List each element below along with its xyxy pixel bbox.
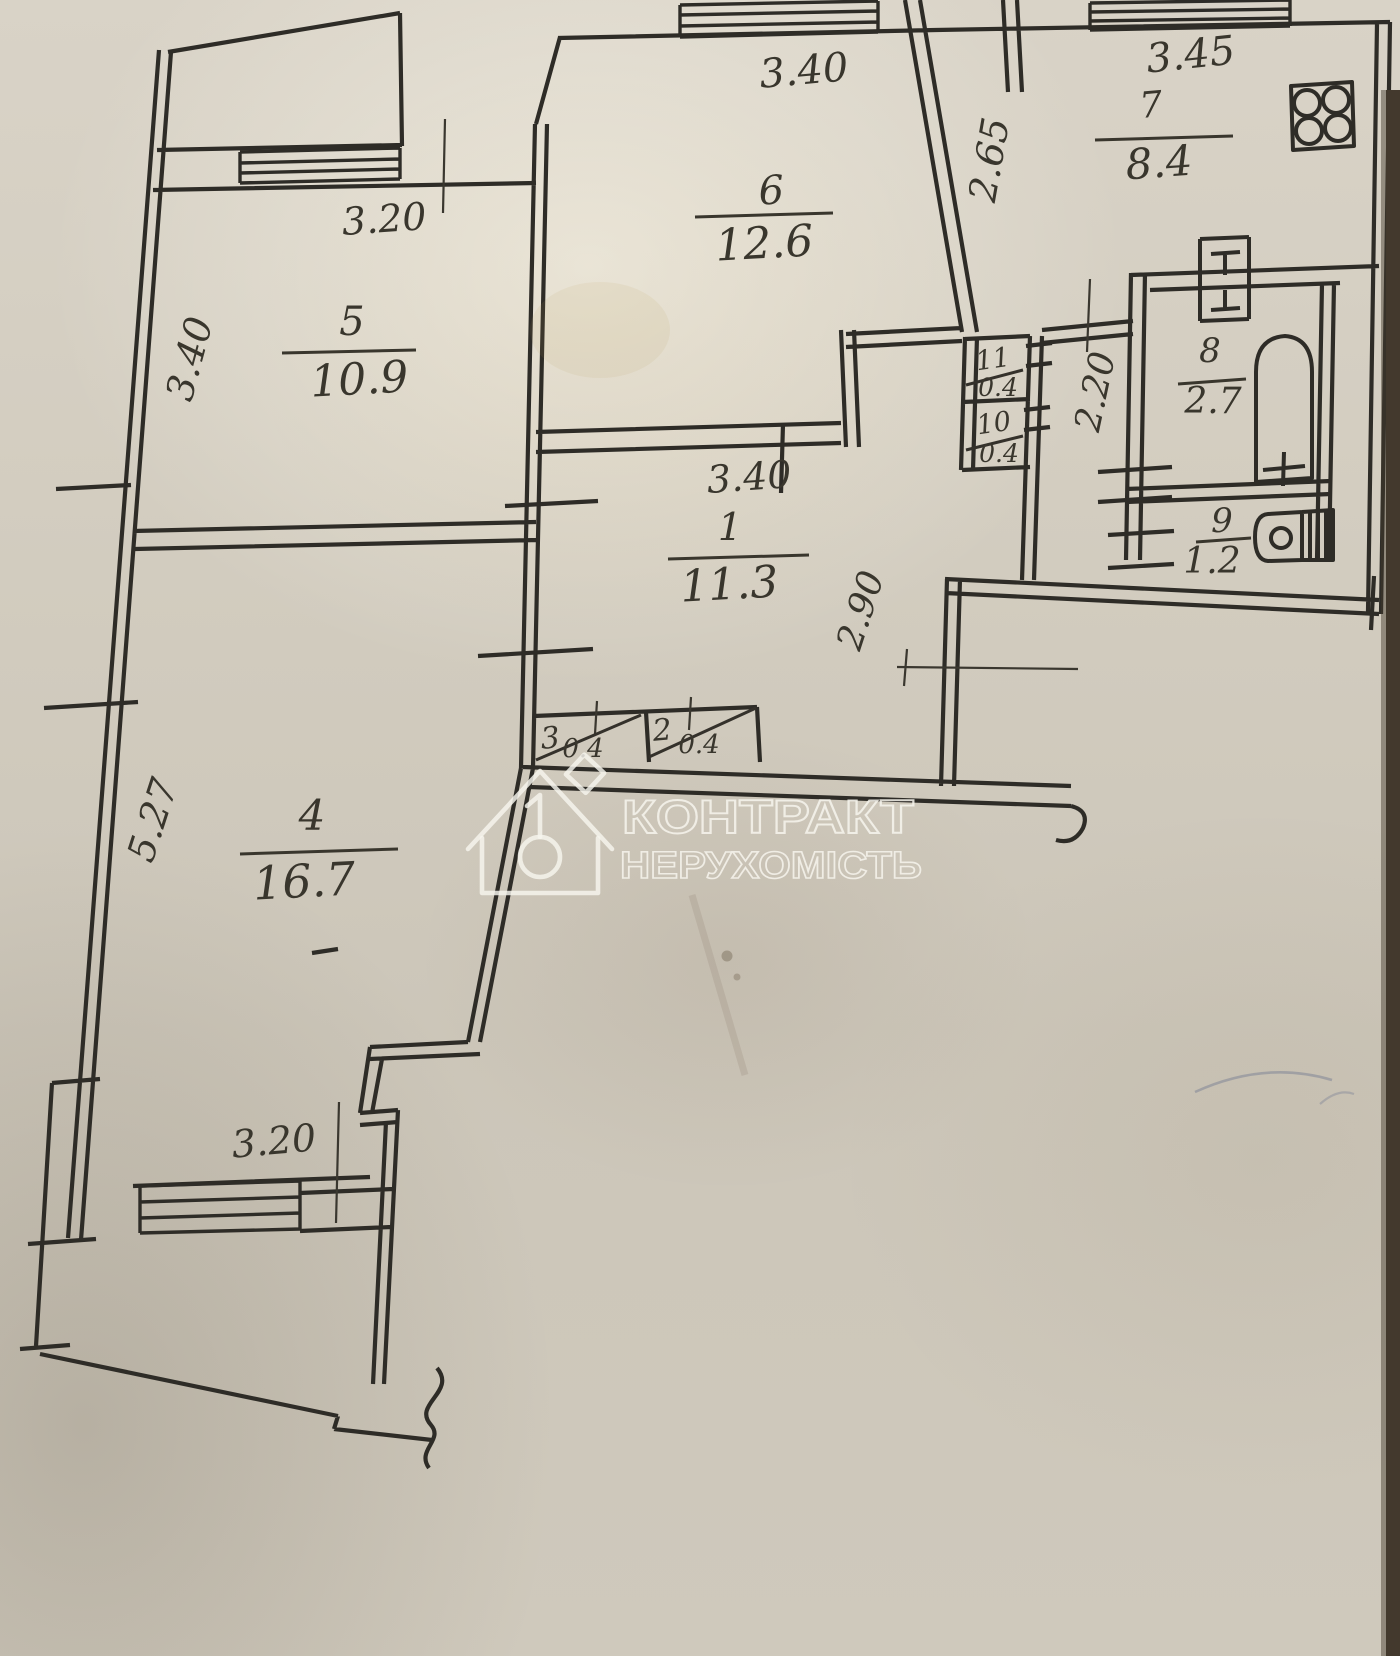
dim-room5-side: 3.40: [157, 312, 221, 405]
room2-number: 2: [650, 712, 673, 749]
fold-spot: [734, 974, 741, 981]
room11-area: 0.4: [978, 373, 1018, 402]
dim-hall-top: 3.40: [705, 452, 792, 502]
fold-spot: [722, 951, 733, 962]
dim-kitchen-side: 2.65: [960, 114, 1018, 206]
watermark: КОНТРАКТ НЕРУХОМІСТЬ: [468, 755, 922, 893]
room5-number: 5: [339, 299, 364, 345]
entrance-door-hook: [1056, 806, 1085, 841]
bathtub-icon: [1256, 336, 1312, 486]
floor-plan-svg: 6 12.6 7 8.4 5 10.9 1 11.3 8 2.7 9 1.2 4…: [0, 0, 1400, 1656]
watermark-line1: КОНТРАКТ: [622, 790, 914, 843]
room8-area: 2.7: [1183, 381, 1241, 422]
dim-room7-top: 3.45: [1144, 28, 1237, 83]
vent-icon: [1200, 237, 1249, 321]
photo-edge-shadow: [1386, 90, 1400, 1656]
room4-area: 16.7: [252, 851, 358, 910]
windows: [140, 0, 1290, 1233]
dim-entry-side: 2.90: [829, 566, 893, 656]
room1-area: 11.3: [679, 556, 780, 612]
room3-area: 0.4: [562, 734, 603, 764]
room2-area: 0.4: [678, 730, 719, 760]
room6-area: 12.6: [714, 215, 815, 271]
room7-area: 8.4: [1124, 136, 1194, 190]
crease-line: [692, 895, 745, 1075]
dim-bath-side: 2.20: [1067, 348, 1124, 436]
room6-number: 6: [757, 167, 785, 214]
paper-stain: [530, 282, 670, 378]
room9-number: 9: [1211, 501, 1233, 541]
dim-room4-side: 5.27: [119, 772, 187, 867]
window-icon-room4: [140, 1181, 300, 1233]
house-key-icon: [468, 755, 612, 893]
room1-number: 1: [718, 505, 742, 549]
floor-plan-photo: 6 12.6 7 8.4 5 10.9 1 11.3 8 2.7 9 1.2 4…: [0, 0, 1400, 1656]
room3-number: 3: [539, 720, 561, 757]
dim-room5-top: 3.20: [340, 194, 427, 244]
stove-icon: [1291, 82, 1354, 150]
pencil-arc: [1195, 1072, 1332, 1092]
room4-number: 4: [298, 791, 326, 840]
window-icon-room5: [240, 148, 400, 183]
watermark-line2: НЕРУХОМІСТЬ: [620, 845, 922, 887]
break-line-icon: [425, 1368, 442, 1468]
room5-area: 10.9: [309, 351, 410, 407]
room10-number: 10: [975, 406, 1013, 441]
room9-area: 1.2: [1183, 541, 1240, 582]
toilet-icon: [1255, 510, 1333, 561]
pencil-arc: [1320, 1092, 1354, 1104]
room7-number: 7: [1138, 84, 1164, 127]
room8-number: 8: [1199, 331, 1221, 371]
photo-edge-shadow-soft: [1381, 90, 1387, 1656]
room6-underline: [695, 213, 833, 217]
room10-area: 0.4: [979, 439, 1019, 468]
dim-room4-bottom: 3.20: [230, 1115, 318, 1166]
room11-number: 11: [974, 342, 1012, 377]
dim-room6-top: 3.40: [758, 44, 851, 98]
